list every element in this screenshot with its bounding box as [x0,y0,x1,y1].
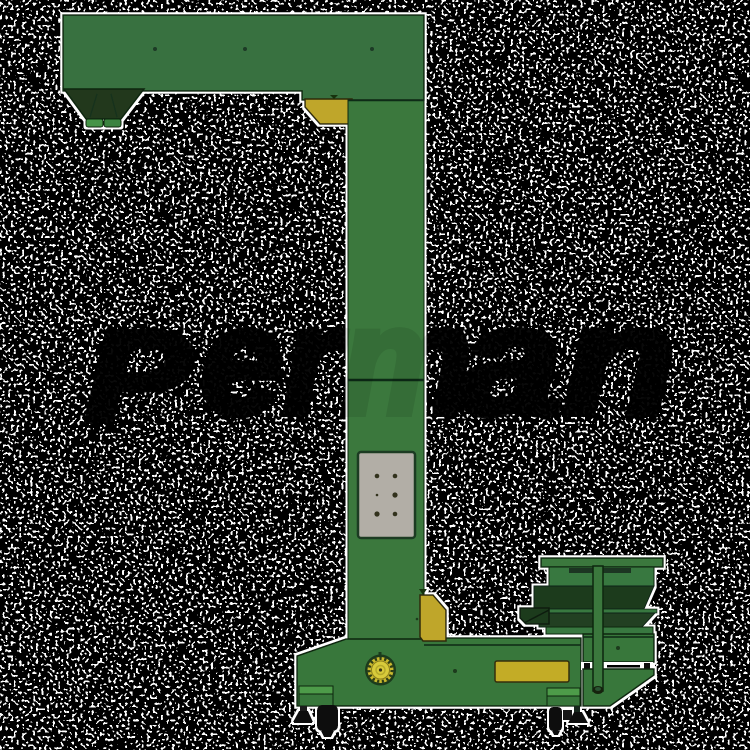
svg-text:an: an [459,273,677,447]
svg-text:erm: erm [200,274,472,448]
svg-text:P: P [85,303,192,449]
